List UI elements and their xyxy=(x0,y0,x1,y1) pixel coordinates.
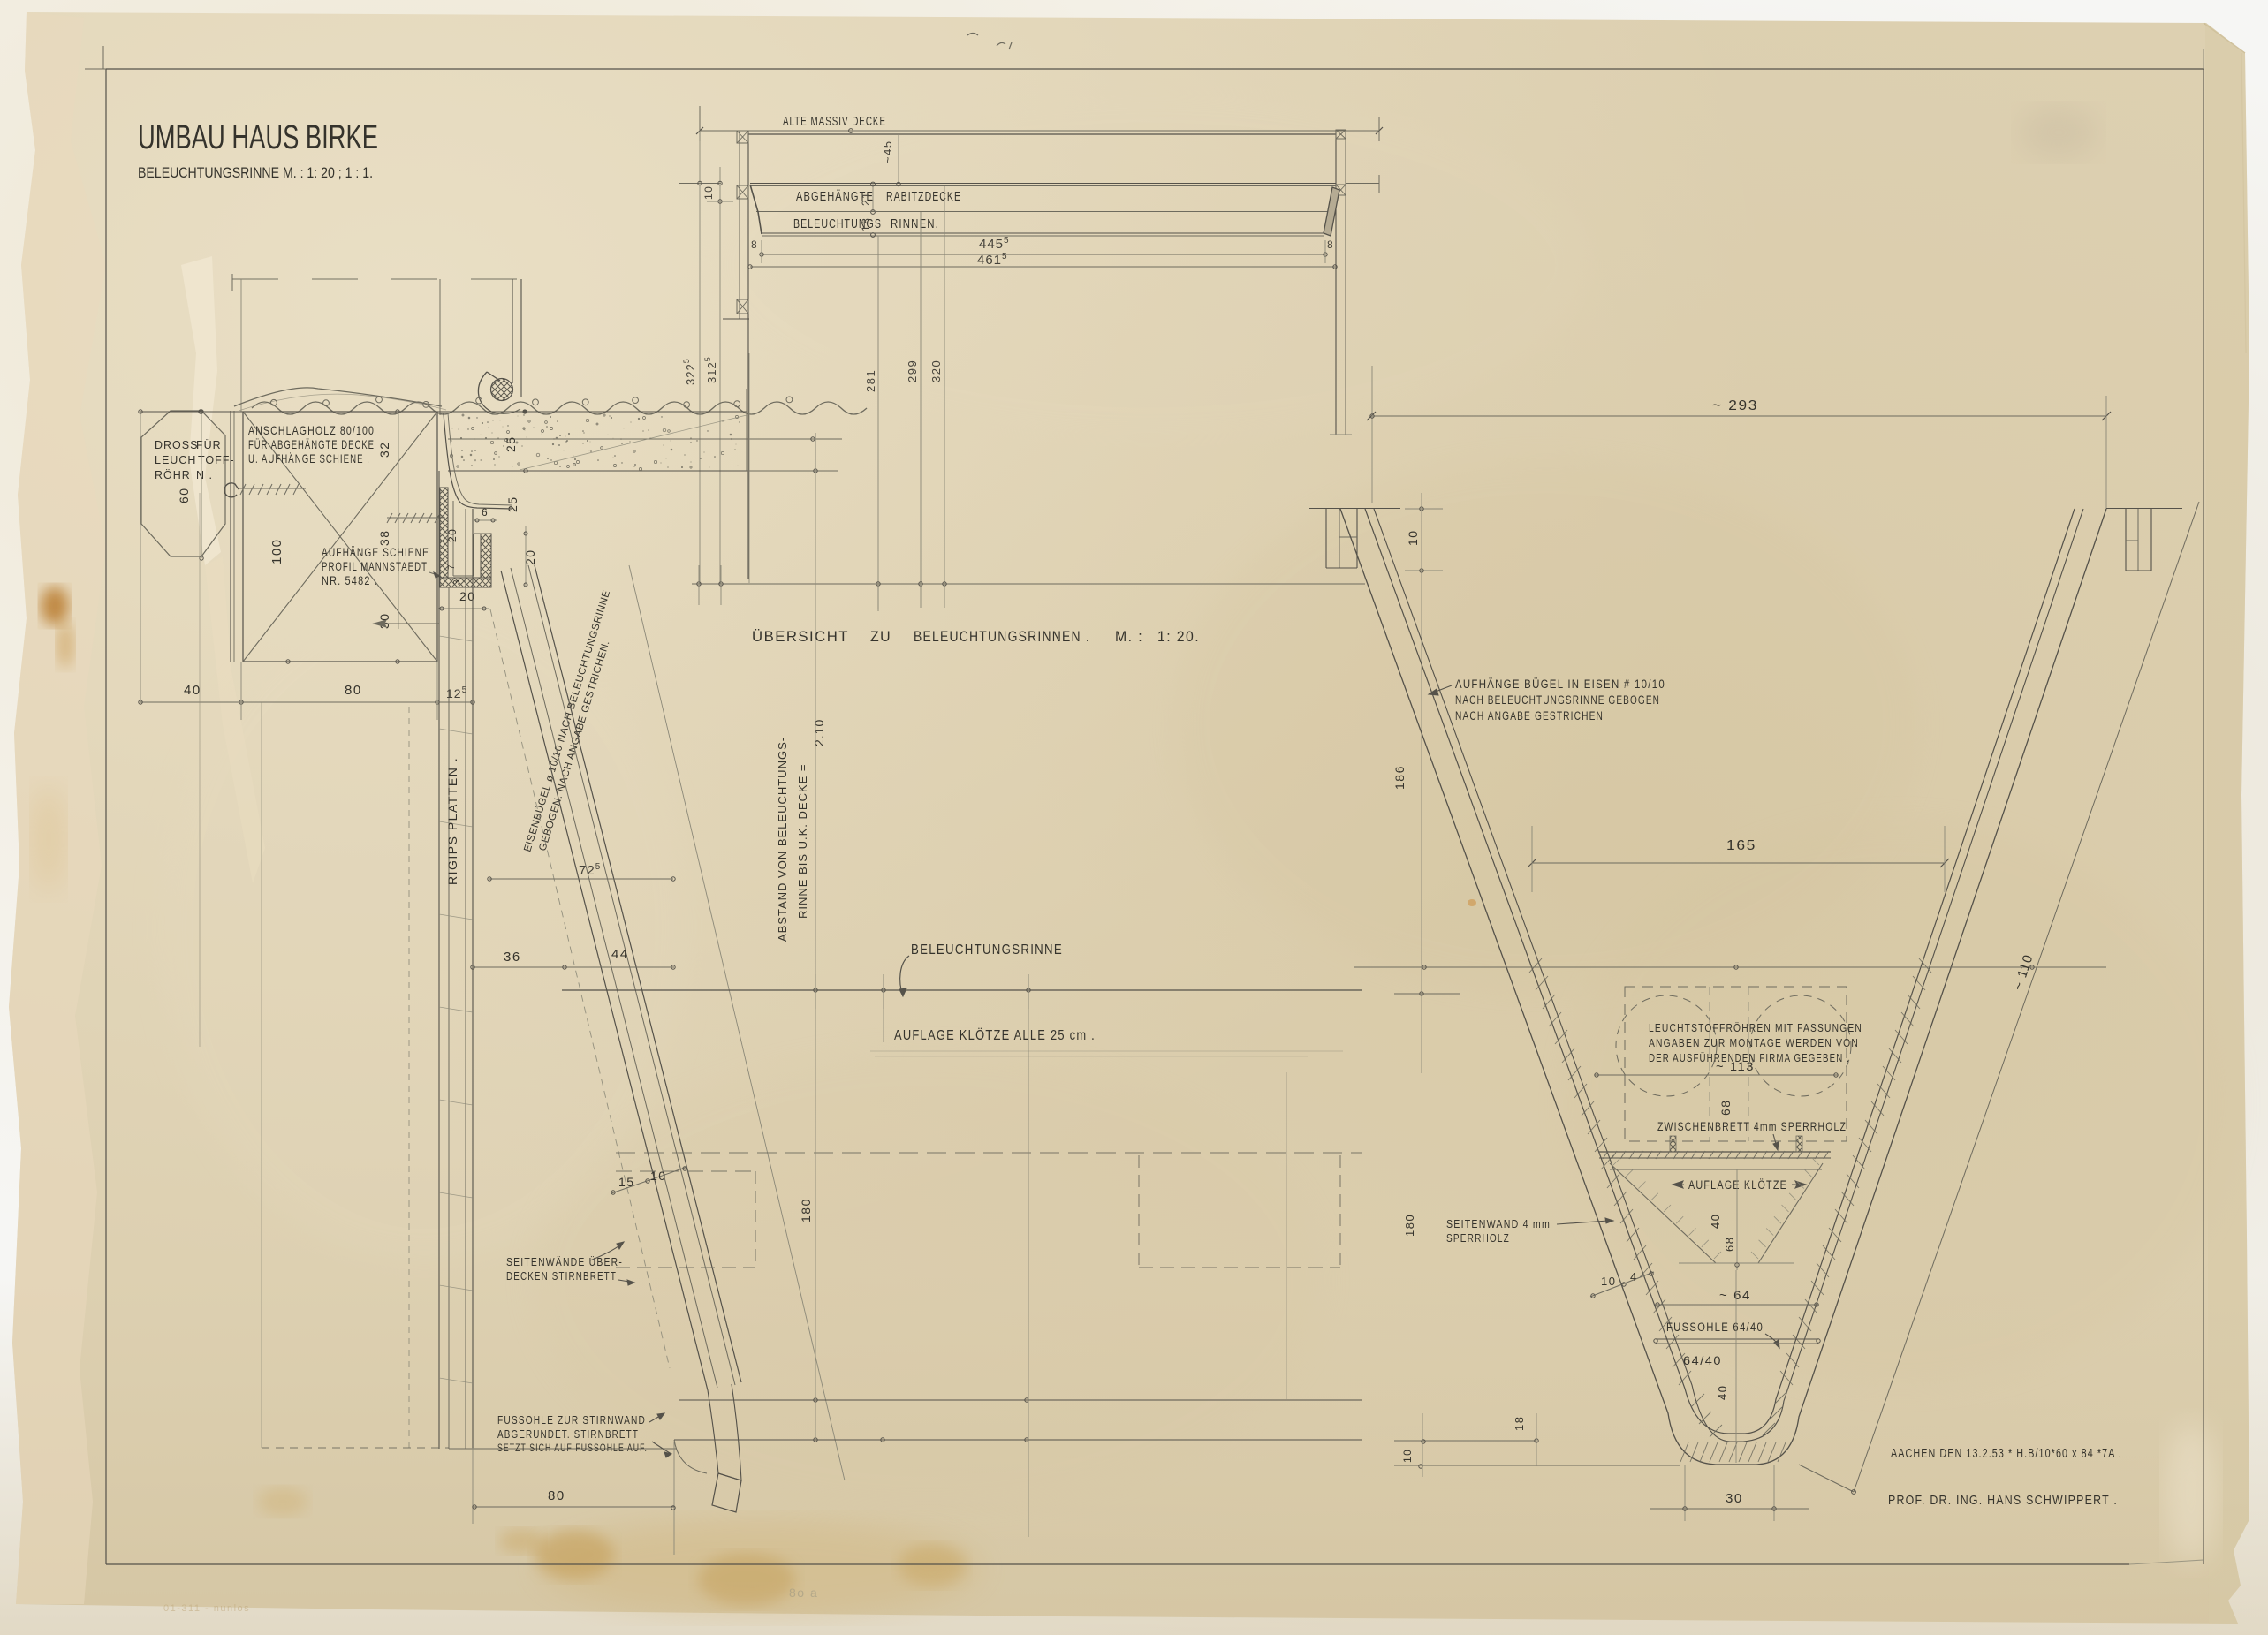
svg-text:44: 44 xyxy=(611,947,629,962)
svg-text:RIGIPS PLATTEN .: RIGIPS PLATTEN . xyxy=(445,757,459,885)
svg-text:BELEUCHTUNGSRINNE: BELEUCHTUNGSRINNE xyxy=(911,942,1063,958)
svg-text:AUFLAGE KLÖTZE ALLE 25 cm: AUFLAGE KLÖTZE ALLE 25 cm . xyxy=(894,1027,1096,1043)
svg-text:180: 180 xyxy=(799,1198,813,1222)
svg-text:10: 10 xyxy=(1401,1449,1414,1463)
svg-text:21: 21 xyxy=(860,192,872,206)
svg-text:165: 165 xyxy=(1726,838,1756,853)
svg-text:100: 100 xyxy=(269,538,284,564)
svg-text:10: 10 xyxy=(650,1169,667,1183)
svg-text:186: 186 xyxy=(1392,765,1407,790)
svg-text:AUFHÄNGE BÜGEL IN EISEN # 10: AUFHÄNGE BÜGEL IN EISEN # 10/10 xyxy=(1455,677,1665,691)
svg-text:U. AUFHÄNGE SCHIENE .: U. AUFHÄNGE SCHIENE . xyxy=(248,451,370,466)
svg-text:18: 18 xyxy=(860,217,872,231)
svg-text:180: 180 xyxy=(1403,1214,1416,1237)
svg-text:RABITZDECKE: RABITZDECKE xyxy=(886,189,961,204)
svg-text:NACH ANGABE GESTRICHEN: NACH ANGABE GESTRICHEN xyxy=(1455,709,1604,723)
svg-text:LEUCH: LEUCH xyxy=(155,454,196,466)
svg-text:80: 80 xyxy=(345,683,362,698)
svg-text:RINNE BIS U.K. DECKE =: RINNE BIS U.K. DECKE = xyxy=(796,763,809,919)
svg-text:ALTE MASSIV DECKE: ALTE MASSIV DECKE xyxy=(783,114,886,129)
svg-text:7: 7 xyxy=(447,564,457,570)
svg-text:40: 40 xyxy=(1716,1385,1729,1400)
svg-text:38: 38 xyxy=(377,529,391,546)
svg-text:SETZT SICH AUF FUSSOHLE AUF.: SETZT SICH AUF FUSSOHLE AUF. xyxy=(497,1442,648,1454)
svg-text:N .: N . xyxy=(196,469,213,481)
svg-text:32: 32 xyxy=(377,441,391,458)
svg-text:4: 4 xyxy=(1630,1270,1638,1283)
svg-text:40: 40 xyxy=(184,683,201,698)
svg-text:20: 20 xyxy=(459,589,476,603)
svg-text:~ 113: ~ 113 xyxy=(1716,1059,1755,1073)
svg-text:PROF. DR. ING. HANS SCHWIP: PROF. DR. ING. HANS SCHWIPPERT . xyxy=(1888,1493,2118,1508)
svg-text:LEUCHTSTOFFRÖHREN MIT FASSUN: LEUCHTSTOFFRÖHREN MIT FASSUNGEN xyxy=(1649,1021,1862,1034)
svg-text:ÜBERSICHT: ÜBERSICHT xyxy=(752,628,849,645)
svg-text:40: 40 xyxy=(1709,1214,1722,1229)
svg-text:10: 10 xyxy=(702,185,715,200)
svg-text:ANSCHLAGHOLZ 80/100: ANSCHLAGHOLZ 80/100 xyxy=(248,423,375,437)
svg-text:8: 8 xyxy=(751,238,758,251)
svg-text:ZWISCHENBRETT 4mm SPERRHOLZ: ZWISCHENBRETT 4mm SPERRHOLZ xyxy=(1657,1120,1847,1133)
svg-text:68: 68 xyxy=(1723,1237,1736,1252)
svg-text:UMBAU HAUS BIRKE: UMBAU HAUS BIRKE xyxy=(138,119,378,156)
svg-text:20: 20 xyxy=(446,528,459,542)
svg-text:320: 320 xyxy=(929,360,943,382)
svg-text:AACHEN DEN 13.2.53 * H.B/10*60: AACHEN DEN 13.2.53 * H.B/10*60 x 84 *7A … xyxy=(1891,1446,2122,1461)
svg-text:6: 6 xyxy=(482,506,489,519)
svg-text:8o a: 8o a xyxy=(789,1586,818,1600)
svg-text:299: 299 xyxy=(906,360,919,382)
svg-text:80: 80 xyxy=(548,1488,565,1503)
svg-text:ABSTAND VON BELEUCHTUNGS-: ABSTAND VON BELEUCHTUNGS- xyxy=(776,737,789,942)
svg-text:NACH BELEUCHTUNGSRINNE GEBOGEN: NACH BELEUCHTUNGSRINNE GEBOGEN xyxy=(1455,693,1660,707)
svg-text:PROFIL MANNSTAEDT: PROFIL MANNSTAEDT xyxy=(322,559,428,573)
svg-text:TOFF-: TOFF- xyxy=(198,454,235,466)
svg-text:FUSSOHLE ZUR STIRNWAND: FUSSOHLE ZUR STIRNWAND xyxy=(497,1413,646,1427)
svg-text:10: 10 xyxy=(1601,1275,1616,1288)
svg-text:AUFLAGE KLÖTZE: AUFLAGE KLÖTZE xyxy=(1688,1178,1787,1192)
svg-text:RÖHR: RÖHR xyxy=(155,469,191,481)
svg-text:281: 281 xyxy=(864,369,877,392)
svg-text:DROSS: DROSS xyxy=(155,439,198,451)
svg-text:25: 25 xyxy=(505,496,520,512)
svg-text:20: 20 xyxy=(523,549,537,565)
svg-text:8: 8 xyxy=(1327,238,1334,251)
svg-text:1: 20.: 1: 20. xyxy=(1157,628,1200,645)
svg-text:SEITENWAND 4 mm: SEITENWAND 4 mm xyxy=(1446,1217,1551,1230)
svg-text:2.10: 2.10 xyxy=(812,719,826,746)
svg-text:3: 3 xyxy=(452,579,462,585)
svg-text:~45: ~45 xyxy=(881,140,894,163)
svg-text:SPERRHOLZ: SPERRHOLZ xyxy=(1446,1231,1510,1245)
svg-text:DECKEN STIRNBRETT: DECKEN STIRNBRETT xyxy=(506,1269,617,1283)
svg-text:68: 68 xyxy=(1718,1099,1733,1116)
svg-text:FÜR ABGEHÄNGTE DECKE: FÜR ABGEHÄNGTE DECKE xyxy=(248,436,375,451)
svg-text:M. :: M. : xyxy=(1115,628,1143,645)
svg-text:ZU: ZU xyxy=(870,628,891,645)
svg-text:SEITENWÄNDE ÜBER-: SEITENWÄNDE ÜBER- xyxy=(506,1255,623,1268)
svg-text:~ 293: ~ 293 xyxy=(1712,398,1758,413)
svg-text:AUFHÄNGE SCHIENE: AUFHÄNGE SCHIENE xyxy=(322,545,429,559)
svg-text:BELEUCHTUNGSRINNEN .: BELEUCHTUNGSRINNEN . xyxy=(914,628,1090,645)
svg-text:FUSSOHLE 64/40: FUSSOHLE 64/40 xyxy=(1666,1321,1764,1334)
svg-text:36: 36 xyxy=(504,950,521,965)
svg-text:BELEUCHTUNGSRINNE M. : 1: 2: BELEUCHTUNGSRINNE M. : 1: 20 ; 1 : 1. xyxy=(138,164,373,181)
svg-text:30: 30 xyxy=(1726,1491,1743,1506)
svg-text:RINNEN.: RINNEN. xyxy=(891,216,939,231)
svg-text:~ 64: ~ 64 xyxy=(1719,1288,1751,1302)
svg-text:25: 25 xyxy=(504,435,518,452)
svg-text:ANGABEN ZUR MONTAGE WERDEN: ANGABEN ZUR MONTAGE WERDEN VON xyxy=(1649,1036,1859,1049)
svg-text:FÜR: FÜR xyxy=(196,439,222,451)
svg-text:ABGERUNDET. STIRNBRETT: ABGERUNDET. STIRNBRETT xyxy=(497,1427,639,1441)
svg-text:64/40: 64/40 xyxy=(1683,1353,1722,1367)
svg-text:18: 18 xyxy=(1513,1416,1526,1431)
svg-text:01-311 - nunlos: 01-311 - nunlos xyxy=(163,1603,250,1614)
svg-text:10: 10 xyxy=(1406,529,1420,546)
svg-text:NR. 5482 .: NR. 5482 . xyxy=(322,573,378,587)
svg-text:15: 15 xyxy=(618,1175,635,1189)
svg-text:60: 60 xyxy=(177,487,191,503)
